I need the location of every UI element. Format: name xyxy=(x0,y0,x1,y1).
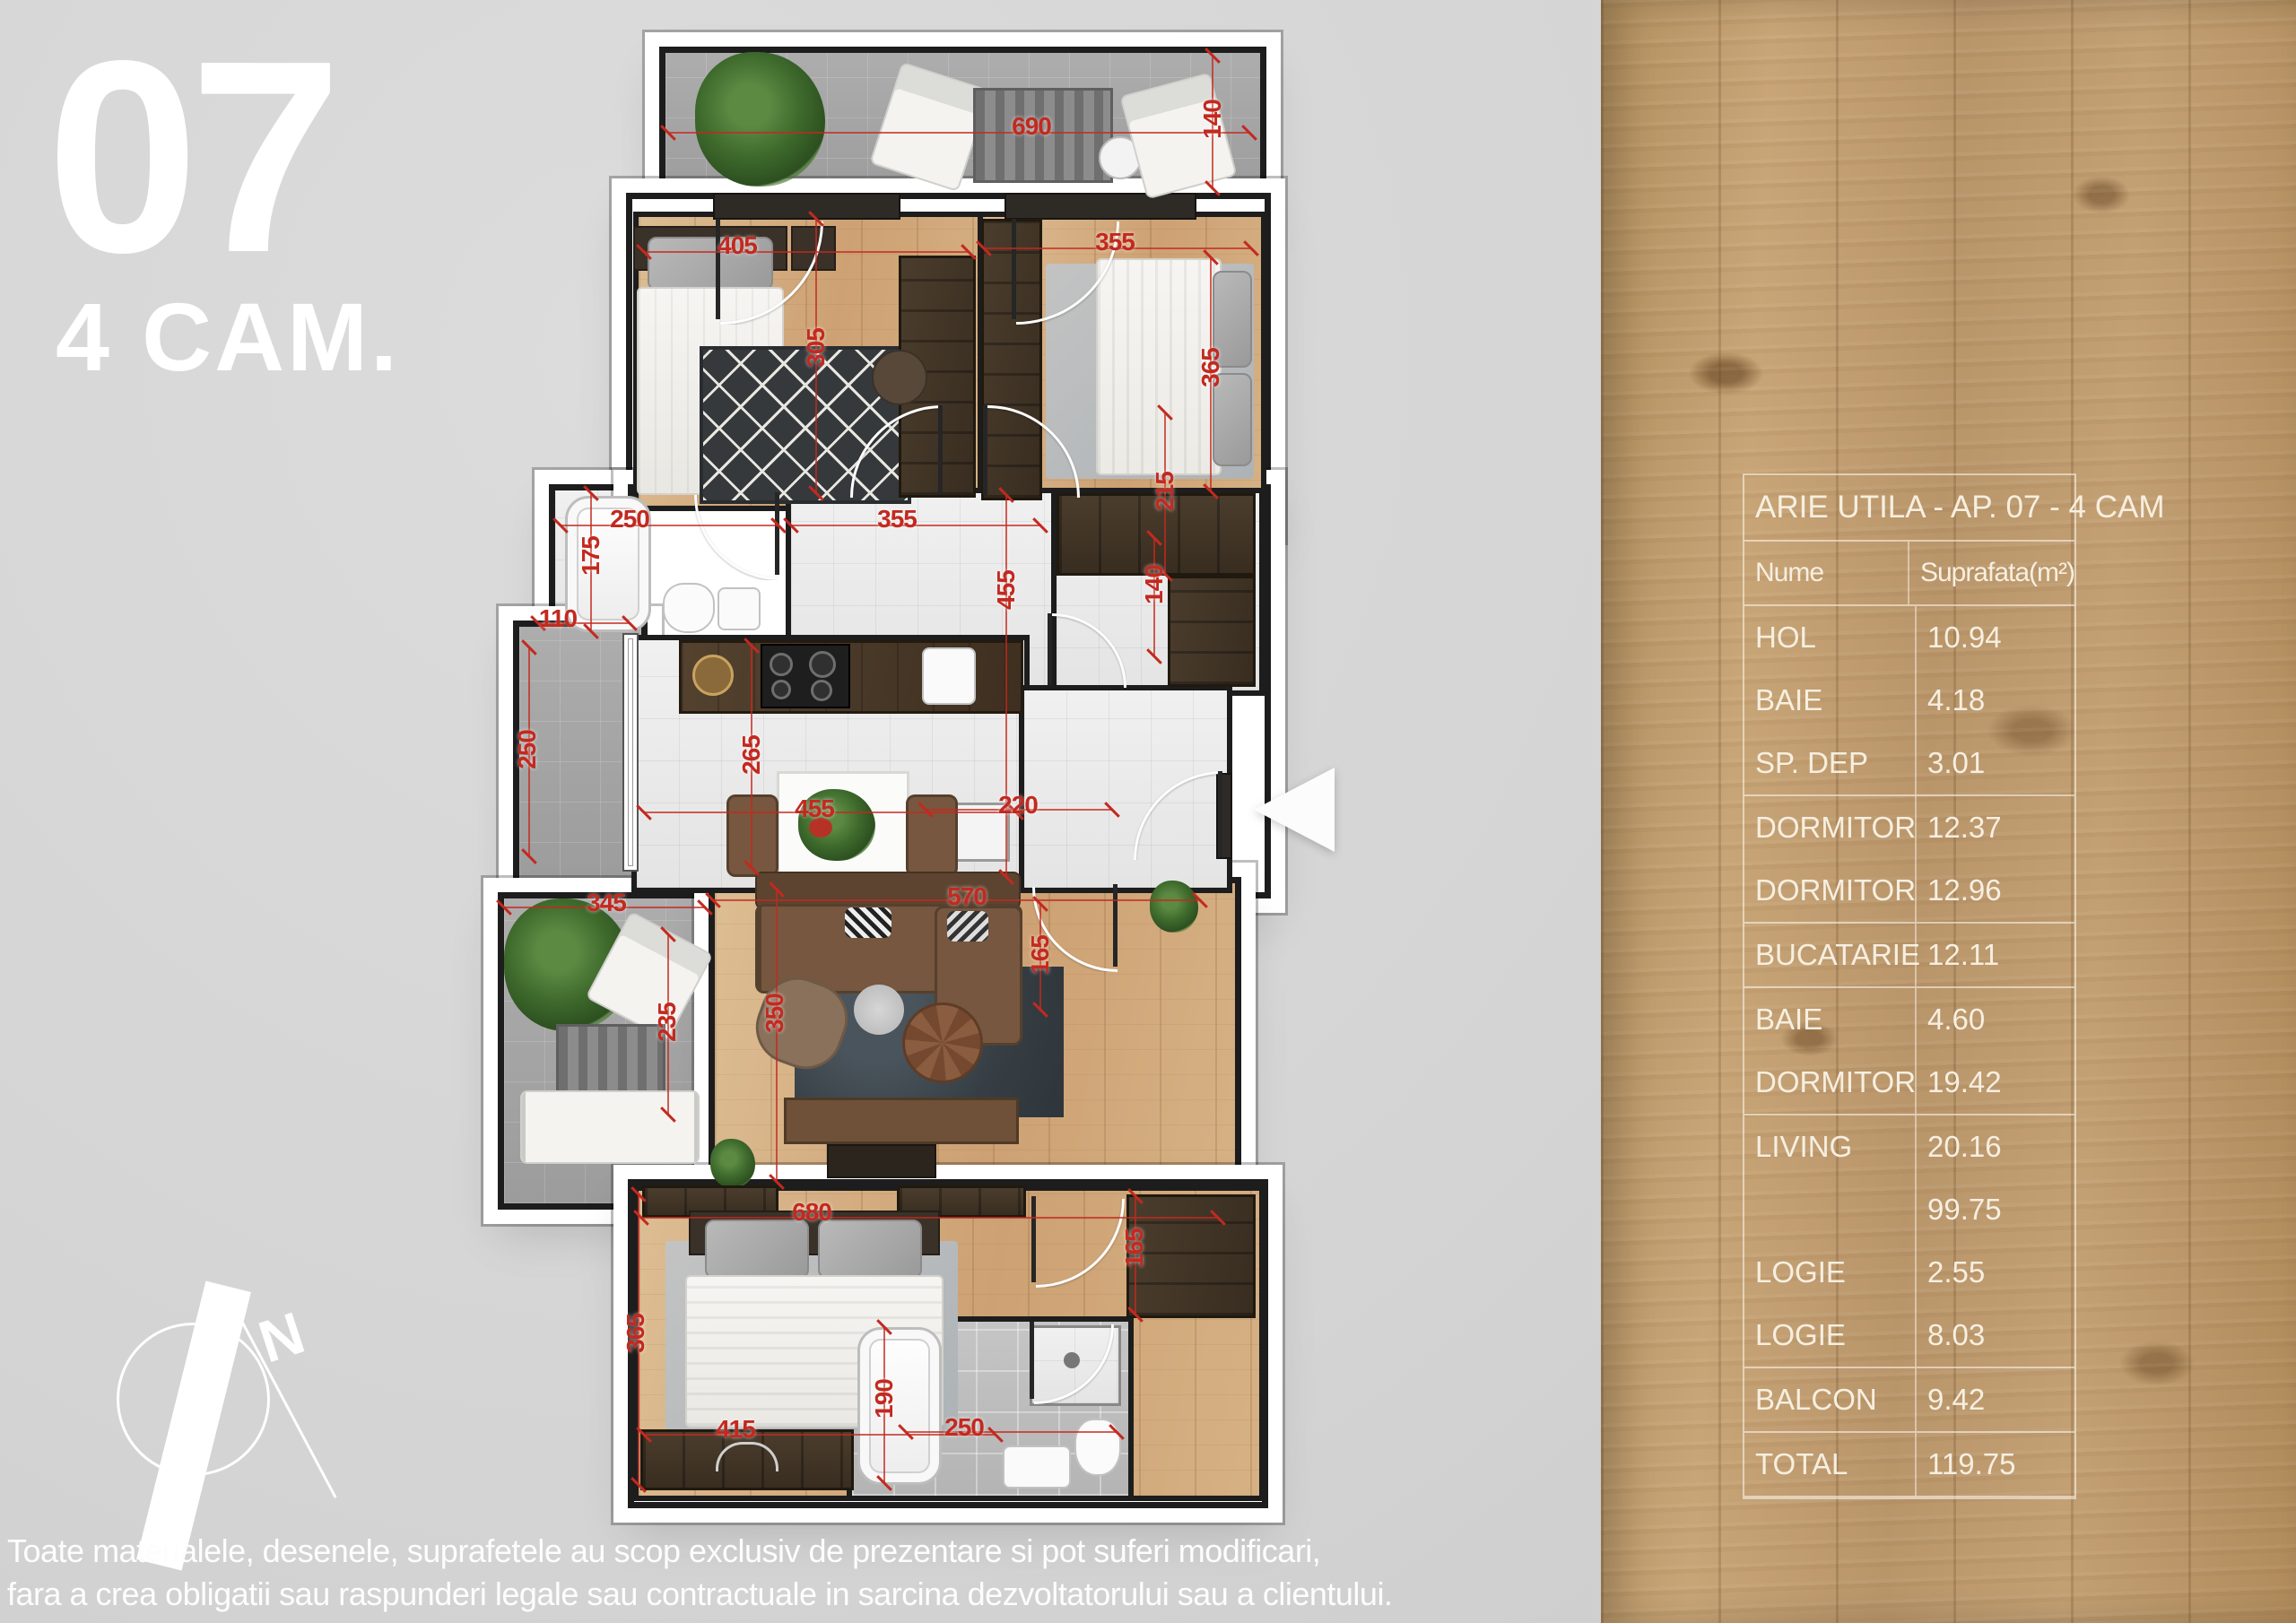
burner-icon xyxy=(770,653,793,676)
dimension-label: 235 xyxy=(653,1002,682,1042)
door-leaf xyxy=(983,405,987,495)
area-row-hol: HOL10.94 xyxy=(1744,606,2074,669)
dimension-label: 165 xyxy=(1026,935,1055,975)
coffee-table-wood xyxy=(902,1002,983,1083)
dimension-label: 455 xyxy=(992,570,1021,610)
room-name: DORMITOR xyxy=(1744,1051,1915,1114)
dimension-label: 250 xyxy=(513,730,542,769)
dimension-label: 415 xyxy=(716,1415,755,1444)
cutting-board xyxy=(692,655,734,696)
room-area: 3.01 xyxy=(1915,732,2074,794)
room-name: LIVING xyxy=(1744,1115,1915,1178)
disclaimer: Toate materialele, desenele, suprafetele… xyxy=(7,1530,1586,1616)
dimension-label: 175 xyxy=(577,536,605,576)
col-header-name: Nume xyxy=(1744,542,1908,604)
dimension-line xyxy=(641,1217,1218,1219)
dimension-label: 345 xyxy=(587,889,626,917)
room-area: 119.75 xyxy=(1915,1433,2074,1496)
entrance-arrow-icon xyxy=(1254,768,1335,852)
sliding-door-panel xyxy=(1004,193,1196,220)
room-name: BAIE xyxy=(1744,988,1915,1051)
dimension-label: 690 xyxy=(1012,112,1051,141)
dimension-line xyxy=(644,251,969,253)
burner-icon xyxy=(811,680,832,701)
side-table-marble xyxy=(854,985,904,1035)
door-leaf xyxy=(1218,771,1222,857)
room-name: DORMITOR xyxy=(1744,796,1915,859)
dimension-label: 305 xyxy=(802,328,831,368)
room-name: BAIE xyxy=(1744,669,1915,732)
area-row-dormitor: DORMITOR12.37 xyxy=(1744,796,2074,859)
disclaimer-line1: Toate materialele, desenele, suprafetele… xyxy=(7,1530,1586,1573)
sliding-door-panel xyxy=(713,193,900,220)
area-row-dormitor: DORMITOR12.96 xyxy=(1744,859,2074,924)
outdoor-sofa xyxy=(520,1090,700,1164)
dimension-line xyxy=(906,1431,1117,1433)
burner-icon xyxy=(809,651,836,678)
room-area: 4.18 xyxy=(1915,669,2074,732)
floor-plan-sheet: 6901404053053553652501753554552151401102… xyxy=(0,0,2296,1623)
room-area: 2.55 xyxy=(1915,1241,2074,1304)
room-name: LOGIE xyxy=(1744,1304,1915,1367)
area-row-sp-dep: SP. DEP3.01 xyxy=(1744,732,2074,796)
unit-number: 07 xyxy=(47,20,333,293)
room-area: 8.03 xyxy=(1915,1304,2074,1367)
sink xyxy=(1003,1445,1071,1488)
tv-console xyxy=(784,1098,1019,1144)
dimension-label: 110 xyxy=(539,604,577,633)
room-name xyxy=(1744,1178,1915,1241)
dimension-label: 455 xyxy=(795,794,834,823)
dimension-line xyxy=(644,1434,996,1436)
desk-chair xyxy=(872,350,927,405)
living-plant xyxy=(1150,881,1198,933)
sofa-pillow xyxy=(947,911,988,942)
burner-icon xyxy=(771,680,791,699)
balcony-plant xyxy=(695,52,825,187)
kitchen-sink xyxy=(922,647,976,705)
room-name: BUCATARIE xyxy=(1744,924,1915,986)
dimension-label: 220 xyxy=(998,791,1038,820)
room-area: 12.37 xyxy=(1915,796,2074,859)
north-compass: N xyxy=(85,1260,372,1529)
dimension-label: 355 xyxy=(877,505,917,534)
area-row-subtotal: 99.75 xyxy=(1744,1178,2074,1241)
door-leaf xyxy=(1031,1196,1036,1282)
room-area: 12.11 xyxy=(1915,924,2074,986)
bed-pillow xyxy=(705,1219,809,1279)
room-area: 99.75 xyxy=(1915,1178,2074,1241)
door-leaf xyxy=(1012,219,1016,319)
area-row-logie: LOGIE8.03 xyxy=(1744,1304,2074,1368)
sink xyxy=(717,587,761,630)
door-leaf xyxy=(775,492,779,575)
dimension-line xyxy=(561,525,778,526)
outdoor-table xyxy=(556,1024,665,1096)
area-table: ARIE UTILA - AP. 07 - 4 CAM Nume Suprafa… xyxy=(1743,473,2076,1499)
disclaimer-line2: fara a crea obligatii sau raspunderi leg… xyxy=(7,1573,1586,1616)
dimension-label: 570 xyxy=(947,882,987,911)
col-header-area: Suprafata(m²) xyxy=(1908,542,2074,604)
dimension-line xyxy=(776,890,778,1182)
area-row-living: LIVING20.16 xyxy=(1744,1115,2074,1178)
living-plant xyxy=(710,1139,755,1188)
storage-cabinets xyxy=(1168,576,1256,687)
dining-chair xyxy=(726,794,778,877)
dimension-label: 190 xyxy=(870,1379,899,1419)
dimension-label: 365 xyxy=(622,1314,650,1353)
dimension-label: 365 xyxy=(1196,348,1225,387)
door-leaf xyxy=(1048,613,1052,685)
dining-chair xyxy=(906,794,958,877)
room-name: LOGIE xyxy=(1744,1241,1915,1304)
bed-pillow xyxy=(818,1219,922,1279)
room-area: 4.60 xyxy=(1915,988,2074,1051)
area-row-bucatarie: BUCATARIE12.11 xyxy=(1744,924,2074,988)
dimension-label: 680 xyxy=(792,1198,831,1227)
tv xyxy=(827,1144,936,1178)
window xyxy=(622,633,639,872)
room-name: BALCON xyxy=(1744,1368,1915,1431)
room-name: HOL xyxy=(1744,606,1915,669)
dimension-label: 250 xyxy=(610,505,649,534)
area-table-title: ARIE UTILA - AP. 07 - 4 CAM xyxy=(1744,475,2074,542)
dimension-label: 355 xyxy=(1095,228,1135,256)
door-leaf xyxy=(1113,884,1118,967)
dimension-label: 165 xyxy=(1120,1228,1149,1268)
room-area: 19.42 xyxy=(1915,1051,2074,1114)
room-name: SP. DEP xyxy=(1744,732,1915,794)
room-name: TOTAL xyxy=(1744,1433,1915,1496)
dimension-label: 250 xyxy=(944,1413,984,1442)
dimension-label: 350 xyxy=(761,994,789,1033)
dimension-label: 140 xyxy=(1140,565,1169,604)
area-row-dormitor: DORMITOR19.42 xyxy=(1744,1051,2074,1115)
dimension-line xyxy=(1005,495,1007,877)
area-row-total: TOTAL119.75 xyxy=(1744,1433,2074,1497)
room-area: 12.96 xyxy=(1915,859,2074,922)
room-area: 20.16 xyxy=(1915,1115,2074,1178)
unit-type-label: 4 CAM. xyxy=(56,289,400,386)
dimension-line xyxy=(668,132,1249,134)
dimension-label: 215 xyxy=(1151,472,1179,511)
area-table-body: HOL10.94BAIE4.18SP. DEP3.01DORMITOR12.37… xyxy=(1744,606,2074,1497)
door-leaf xyxy=(1030,1322,1034,1399)
room-name: DORMITOR xyxy=(1744,859,1915,922)
toilet xyxy=(663,583,715,633)
room-area: 9.42 xyxy=(1915,1368,2074,1431)
area-row-baie: BAIE4.60 xyxy=(1744,988,2074,1051)
area-table-header: Nume Suprafata(m²) xyxy=(1744,542,2074,606)
dimension-label: 265 xyxy=(737,735,766,775)
sofa-pillow xyxy=(845,907,891,938)
room-area: 10.94 xyxy=(1915,606,2074,669)
area-row-balcon: BALCON9.42 xyxy=(1744,1368,2074,1433)
stove xyxy=(761,644,850,708)
dimension-label: 405 xyxy=(717,231,757,260)
area-row-logie: LOGIE2.55 xyxy=(1744,1241,2074,1304)
area-row-baie: BAIE4.18 xyxy=(1744,669,2074,732)
dimension-label: 140 xyxy=(1198,100,1227,139)
door-leaf xyxy=(938,405,943,495)
